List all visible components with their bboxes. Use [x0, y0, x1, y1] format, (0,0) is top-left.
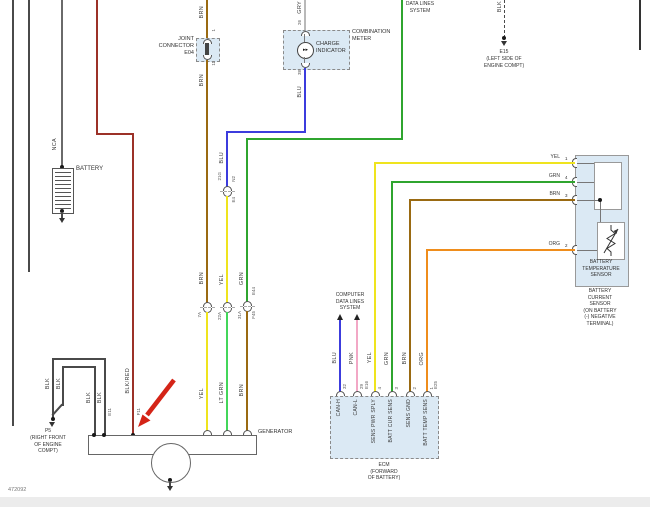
wire-blk-left-outer — [12, 0, 14, 426]
wire-label-gry: GRY — [297, 1, 304, 14]
current-sensor-element — [594, 162, 622, 210]
ecm-wire-label-org: ORG — [419, 352, 426, 365]
ecm-wire-label-brn: BRN — [402, 352, 409, 365]
wire-brn-sensor-v — [409, 199, 411, 396]
wire-ltgrn-low — [226, 312, 228, 435]
wire-blk-loop-outer-right — [104, 358, 106, 435]
charge-indicator-lamp-icon: ▸▸ — [297, 42, 314, 59]
wire-blk-left-inner — [28, 0, 30, 272]
ecm-label: ECM (FORWARD OF BATTERY) — [352, 462, 416, 482]
battery-temp-sensor-label: BATTERY TEMPERATURE SENSOR — [576, 259, 626, 279]
sensor-wire-label-brn: BRN — [536, 191, 560, 197]
e15-ground-name: E15 — [489, 49, 519, 56]
generator-ground-icon — [167, 486, 173, 491]
charge-indicator-label: CHARGE INDICATOR — [316, 41, 346, 55]
wire-label-brn-mid2: BRN — [199, 272, 206, 285]
wire-yel-sensor-v — [374, 162, 376, 396]
inline-connector-4-pin: 31A — [237, 311, 242, 319]
p5-ground-location: (RIGHT FRONT OF ENGINE COMPT) — [10, 435, 86, 455]
joint-connector-pin-top: 1 — [211, 29, 216, 32]
battery-label: BATTERY — [76, 166, 103, 173]
wire-nca — [61, 0, 63, 168]
bottom-page-strip — [0, 497, 650, 507]
meter-inner-wire-top — [304, 34, 305, 42]
wire-yel-sensor-h — [374, 162, 575, 164]
wire-brn-sensor-h — [409, 199, 575, 201]
battery-plates-icon — [55, 172, 71, 210]
wire-label-blk-1: BLK — [45, 378, 52, 389]
wire-label-nca: NCA — [52, 138, 59, 151]
ecm-signal-can-l: CAN-L — [353, 399, 360, 416]
sensor-pin1-inner-wire — [577, 163, 594, 164]
inline-connector-4-code-top: E44 — [251, 287, 256, 295]
joint-connector-bus — [205, 43, 209, 55]
sensor-wire-label-yel: YEL — [536, 154, 560, 160]
inline-connector-2-code-top: N2 — [231, 176, 236, 182]
computer-data-lines-label: COMPUTER DATA LINES SYSTEM — [328, 292, 372, 312]
ecm-pin-batt-cur: 3 — [394, 387, 399, 390]
wire-blkred-top — [96, 0, 98, 135]
wire-label-blk-2: BLK — [56, 378, 63, 389]
wire-label-yel-low: YEL — [199, 388, 206, 399]
wire-pnk-can-l — [356, 320, 358, 396]
inline-connector-1-pin: 7A — [197, 312, 202, 318]
wire-label-brn-mid: BRN — [199, 74, 206, 87]
ecm-signal-sens-gnd: SENS GND — [406, 399, 413, 428]
wire-label-ltgrn: LT GRN — [219, 382, 226, 403]
ecm-wire-label-yel: YEL — [367, 352, 374, 363]
ecm-wire-label-blu: BLU — [332, 352, 339, 364]
ecm-pin-can-h: 32 — [342, 384, 347, 389]
thermistor-icon — [600, 224, 622, 256]
e15-ground-location: (LEFT SIDE OF ENGINE COMPT) — [474, 56, 534, 69]
wire-blk-merge-diagonal — [52, 404, 63, 416]
ecm-pin-sens-pwr: 4 — [377, 387, 382, 390]
inline-connector-2-pin: 21G — [217, 172, 222, 181]
combination-meter-label: COMBINATION METER — [352, 29, 390, 43]
wire-grn-top — [401, 0, 403, 140]
meter-arc-top-icon — [301, 31, 310, 36]
ecm-signal-can-h: CAN-H — [336, 399, 343, 416]
sensor-junction-dot — [598, 198, 602, 202]
wire-label-yel-mid: YEL — [219, 274, 226, 285]
wire-grn-down — [246, 138, 248, 302]
meter-pin-top: 26 — [297, 20, 302, 25]
diagram-id: 472092 — [8, 487, 26, 493]
ecm-wire-label-grn: GRN — [384, 352, 391, 365]
generator-terminal-blk2 — [102, 433, 106, 437]
sensor-pin2-inner-wire — [577, 250, 597, 251]
generator-terminal-blk1 — [92, 433, 96, 437]
wire-blk-loop-inner-top — [62, 366, 96, 368]
ecm-signal-batt-temp: BATT TEMP SENS — [423, 399, 430, 446]
wire-brn-top — [206, 0, 208, 38]
e15-ground-icon — [501, 41, 507, 46]
inline-connector-4-code-bottom: F45 — [251, 311, 256, 319]
battery-icon — [52, 168, 74, 214]
wire-label-grn: GRN — [239, 272, 246, 285]
wire-blu-can-h — [339, 320, 341, 396]
generator-pin-blk: E11 — [107, 408, 112, 416]
sensor-wire-label-org: ORG — [536, 241, 560, 247]
wire-label-brn-low: BRN — [239, 384, 246, 397]
wire-org-sensor-h — [426, 249, 575, 251]
p5-ground-name: P5 — [38, 428, 58, 435]
wire-label-blk-4: BLK — [97, 392, 104, 403]
e15-ground-dot — [502, 36, 506, 40]
ecm-wire-label-pnk: PNK — [349, 352, 356, 364]
joint-connector-pin-bottom: 11 — [211, 61, 216, 66]
wire-gry — [304, 0, 306, 30]
generator-rotor-icon — [151, 443, 191, 483]
ecm-signal-batt-cur: BATT CUR SENS — [388, 399, 395, 442]
wire-blk-loop-outer-left — [52, 358, 54, 416]
sensor-pin3-inner-wire — [577, 200, 600, 201]
wire-label-blk-e15: BLK — [497, 1, 504, 12]
battery-terminator-icon — [59, 218, 65, 223]
wire-blk-loop-outer-top — [52, 358, 106, 360]
red-annotation-arrow-icon — [128, 374, 180, 432]
wire-blu-down — [226, 131, 228, 187]
wire-blu-meter — [304, 68, 306, 133]
wire-blkred-bend — [96, 133, 134, 135]
battery-current-sensor-label: BATTERY CURRENT SENSOR (ON BATTERY (-) N… — [568, 288, 632, 328]
ecm-signal-sens-pwr: SENS PWR SPLY — [371, 399, 378, 443]
wire-brn-low — [246, 311, 248, 435]
wire-brn-mid — [206, 60, 208, 303]
wire-label-brn-top: BRN — [199, 6, 206, 19]
wire-blu-bend — [226, 131, 306, 133]
inline-connector-2-code-bottom: E4 — [231, 197, 236, 203]
ecm-pin-sens-gnd: 2 — [412, 387, 417, 390]
wire-label-blk-3: BLK — [86, 392, 93, 403]
wire-grn-sensor-h — [391, 181, 575, 183]
ecm-code-can-l: E16 — [364, 381, 369, 389]
wire-label-blu-2: BLU — [219, 152, 226, 164]
ecm-code-batt-temp: E25 — [433, 381, 438, 389]
wire-blk-e15 — [504, 0, 505, 38]
meter-pin-bottom: 38 — [297, 70, 302, 75]
wiring-diagram: NCA BATTERY BLK/RED F11 BRN JOINT CONNEC… — [0, 0, 650, 507]
wire-grn-bend — [246, 138, 403, 140]
wire-org-sensor-v — [426, 249, 428, 396]
p5-ground-icon — [49, 422, 55, 427]
sensor-junction-drop — [600, 200, 601, 222]
p5-ground-dot — [51, 417, 55, 421]
inline-connector-3-pin: 22A — [217, 312, 222, 320]
sensor-pin4-inner-wire — [577, 182, 594, 183]
wire-yel-mid — [226, 196, 228, 303]
wire-label-blu-1: BLU — [297, 86, 304, 98]
sensor-wire-label-grn: GRN — [536, 173, 560, 179]
joint-connector-label: JOINT CONNECTOR E04 — [149, 36, 194, 56]
generator-label: GENERATOR — [258, 429, 292, 436]
wire-grn-sensor-v — [391, 181, 393, 396]
wire-blk-loop-inner-right — [94, 366, 96, 435]
wire-blk-top-right — [639, 0, 641, 50]
wire-yel-low — [206, 312, 208, 435]
